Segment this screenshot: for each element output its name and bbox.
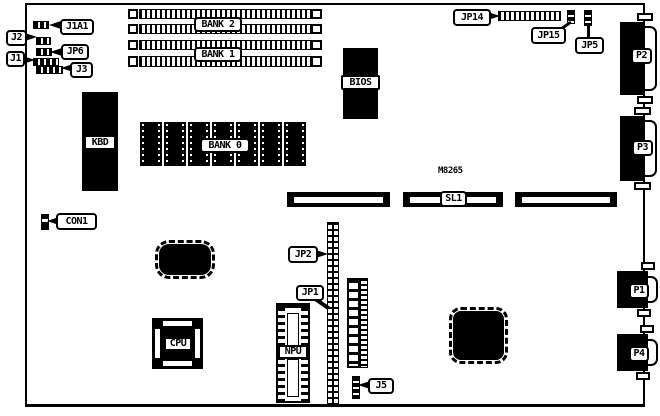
cpu-corner [155,358,163,366]
port-tab [641,262,655,270]
simm-cap [128,9,138,19]
simm-cap [128,40,138,50]
label-bank1: BANK 1 [194,47,242,62]
header-jp2-jp1 [327,222,339,404]
connector-j1a1 [33,21,49,29]
label-cpu: CPU [164,337,192,351]
label-jp14: JP14 [453,9,491,26]
port-tab [636,372,650,380]
slot-1 [287,192,390,207]
label-jp1: JP1 [296,285,324,301]
label-p2: P2 [631,48,652,64]
label-bank0: BANK 0 [200,138,250,153]
cpu-corner [192,321,200,329]
vertical-socket-pins [360,278,368,368]
dram-chip [284,122,306,166]
label-jp5: JP5 [575,37,604,54]
label-p4: P4 [629,346,649,362]
motherboard-diagram: J1A1 J2 JP6 J1 J3 BANK 2 BANK 1 BANK 0 B… [0,0,660,416]
port-tab [640,325,654,333]
port-tab [637,13,653,21]
label-j3: J3 [70,62,93,78]
port-tab [634,107,651,115]
label-bios: BIOS [341,75,380,90]
label-con1: CON1 [56,213,97,230]
label-kbd: KBD [84,135,116,150]
cpu-corner [155,321,163,329]
qfp-chip-lower [453,311,504,360]
label-jp2: JP2 [288,246,318,263]
dram-chip [164,122,186,166]
simm-cap [128,24,138,34]
label-j5: J5 [368,378,394,394]
simm-cap [311,40,322,50]
header-jp14 [498,11,561,21]
simm-cap [128,56,138,67]
label-bank2: BANK 2 [194,17,242,32]
dram-chip [140,122,162,166]
dram-chip [260,122,282,166]
label-npu: NPU [278,345,308,359]
simm-cap [311,24,322,34]
npu-window-bottom [287,359,299,397]
slot-3 [515,192,617,207]
connector-j2 [36,37,51,45]
label-p3: P3 [632,140,653,156]
model-text: M8265 [438,166,478,178]
port-tab [634,182,651,190]
label-j2: J2 [6,30,27,46]
vertical-socket [347,278,360,368]
simm-cap [311,56,322,67]
port-tab [637,96,653,104]
simm-cap [311,9,322,19]
label-sl1: SL1 [440,191,467,207]
label-p1: P1 [629,283,649,299]
label-jp6: JP6 [61,44,89,60]
label-jp15: JP15 [531,27,566,44]
cpu-corner [192,358,200,366]
header-jp5 [584,10,592,26]
port-tab [637,309,651,317]
qfp-chip-upper [159,244,211,275]
connector-j1 [33,58,59,66]
connector-j3 [36,66,63,74]
label-j1: J1 [6,51,25,67]
label-j1a1: J1A1 [60,19,94,35]
